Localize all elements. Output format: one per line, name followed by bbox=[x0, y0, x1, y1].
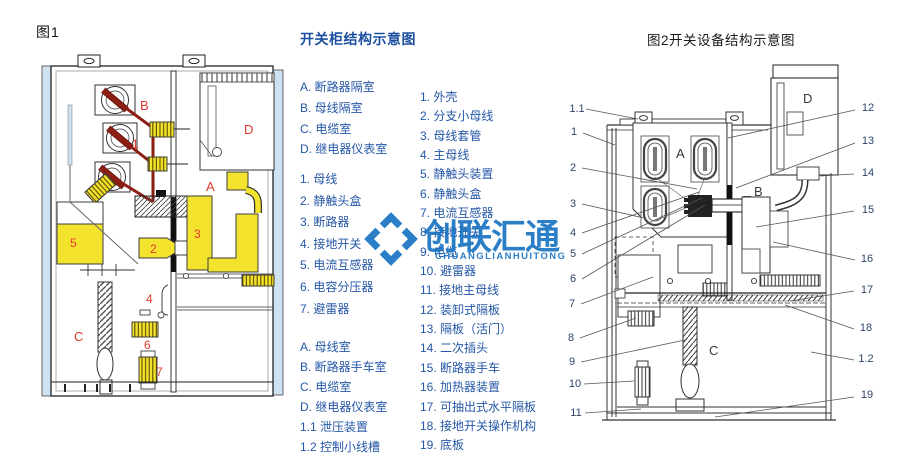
figure2-caption: 图2开关设备结构示意图 bbox=[647, 29, 795, 49]
legend-item: 13. 隔板（活门） bbox=[420, 320, 536, 339]
fig2-compartment-D bbox=[771, 65, 838, 175]
legend-item: 7. 避雷器 bbox=[300, 299, 373, 321]
fig1-label-2: 2 bbox=[150, 242, 157, 256]
legend-item: 18. 接地开关操作机构 bbox=[420, 417, 536, 436]
legend-item: 15. 断路器手车 bbox=[420, 359, 536, 378]
fig1-label-6: 6 bbox=[144, 338, 151, 352]
fig2-callout-12: 12 bbox=[862, 102, 874, 114]
fig2-callout-3: 3 bbox=[570, 198, 576, 210]
fig2-callout-15: 15 bbox=[862, 204, 874, 216]
fig2-callout-9: 9 bbox=[569, 356, 575, 368]
fig2-callout-8: 8 bbox=[568, 332, 574, 344]
fig2-label-D: D bbox=[803, 91, 812, 106]
fig2-callout-6: 6 bbox=[570, 273, 576, 285]
legend-item: 2. 分支小母线 bbox=[420, 107, 536, 126]
fig2-label-B: B bbox=[754, 184, 763, 199]
page: 图1 bbox=[0, 0, 900, 474]
legend-item: A. 母线室 bbox=[300, 337, 387, 357]
fig2-label-A: A bbox=[676, 146, 685, 161]
legend-item: C. 电缆室 bbox=[300, 119, 387, 140]
fig1-label-B: B bbox=[140, 98, 149, 113]
legend-parts-1: 1. 母线 2. 静触头盒 3. 断路器 4. 接地开关 5. 电流互感器 6.… bbox=[300, 169, 373, 320]
legend-item: D. 继电器仪表室 bbox=[300, 397, 387, 417]
legend-compartments-1: A. 断路器隔室 B. 母线隔室 C. 电缆室 D. 继电器仪表室 bbox=[300, 77, 387, 160]
legend-item: 11. 接地主母线 bbox=[420, 281, 536, 300]
fig2-callout-13: 13 bbox=[862, 135, 874, 147]
fig1-label-7: 7 bbox=[156, 365, 163, 379]
legend-item: 10. 避雷器 bbox=[420, 262, 536, 281]
fig2-callout-11: 11 bbox=[570, 407, 581, 419]
fig1-label-4: 4 bbox=[146, 292, 153, 306]
fig2-callout-2: 2 bbox=[570, 162, 576, 174]
legend-item: 4. 主母线 bbox=[420, 146, 536, 165]
legend-item: 7. 电流互感器 bbox=[420, 204, 536, 223]
fig2-callout-1-1: 1.1 bbox=[569, 103, 584, 115]
legend-item: 1. 母线 bbox=[300, 169, 373, 191]
fig1-label-D: D bbox=[244, 122, 253, 137]
legend-item: 4. 接地开关 bbox=[300, 234, 373, 256]
legend-item: D. 继电器仪表室 bbox=[300, 139, 387, 160]
figure2-diagram: A B C D 1.1 1 2 3 4 5 6 7 8 9 10 11 12 1… bbox=[558, 55, 888, 455]
legend-item: 8. 接地开关 bbox=[420, 223, 536, 242]
legend-item: C. 电缆室 bbox=[300, 377, 387, 397]
fig2-callout-1: 1 bbox=[571, 126, 577, 138]
legend-item: 1.1 泄压装置 bbox=[300, 417, 387, 437]
fig1-label-1: 1 bbox=[132, 137, 139, 151]
figure1-caption: 图1 bbox=[36, 22, 60, 42]
legend-item: 2. 静触头盒 bbox=[300, 191, 373, 213]
legend-item: 6. 电容分压器 bbox=[300, 277, 373, 299]
fig1-compartment-D bbox=[200, 73, 274, 170]
fig1-lifting-lugs bbox=[78, 55, 205, 67]
legend-item: 14. 二次插头 bbox=[420, 339, 536, 358]
legend-item: 17. 可抽出式水平隔板 bbox=[420, 398, 536, 417]
legend-item: 19. 底板 bbox=[420, 436, 536, 455]
fig2-callout-19: 19 bbox=[861, 389, 873, 401]
fig2-callout-7: 7 bbox=[569, 298, 575, 310]
fig2-callout-18: 18 bbox=[860, 322, 872, 334]
legend-item: B. 母线隔室 bbox=[300, 98, 387, 119]
legend-item: A. 断路器隔室 bbox=[300, 77, 387, 98]
fig2-callout-5: 5 bbox=[570, 248, 576, 260]
legend-item: 3. 断路器 bbox=[300, 212, 373, 234]
fig2-callout-16: 16 bbox=[861, 253, 873, 265]
legend-parts-2: 1. 外壳 2. 分支小母线 3. 母线套管 4. 主母线 5. 静触头装置 6… bbox=[420, 88, 536, 456]
legend-item: 1. 外壳 bbox=[420, 88, 536, 107]
legend-compartments-2: A. 母线室 B. 断路器手车室 C. 电缆室 D. 继电器仪表室 1.1 泄压… bbox=[300, 337, 387, 458]
legend-item: 5. 电流互感器 bbox=[300, 255, 373, 277]
fig2-callout-10: 10 bbox=[569, 378, 581, 390]
legend-item: 12. 装卸式隔板 bbox=[420, 301, 536, 320]
legend-item: 9. 电缆 bbox=[420, 243, 536, 262]
fig2-callout-14: 14 bbox=[862, 167, 874, 179]
fig1-label-C: C bbox=[74, 329, 83, 344]
legend-item: 6. 静触头盒 bbox=[420, 185, 536, 204]
fig2-label-C: C bbox=[709, 343, 718, 358]
figure1-diagram: B 1 D A 2 3 5 4 C 6 7 bbox=[40, 52, 290, 402]
fig1-label-5: 5 bbox=[70, 236, 77, 250]
fig1-left-panel bbox=[42, 66, 51, 396]
fig2-callout-17: 17 bbox=[861, 284, 873, 296]
fig1-label-3: 3 bbox=[194, 227, 201, 241]
legend-item: 3. 母线套管 bbox=[420, 127, 536, 146]
legend-item: 1.2 控制小线槽 bbox=[300, 437, 387, 457]
fig2-callout-1-2: 1.2 bbox=[858, 353, 873, 365]
legend-title: 开关柜结构示意图 bbox=[300, 29, 416, 49]
fig1-label-A: A bbox=[206, 179, 215, 194]
fig2-truck bbox=[618, 245, 820, 317]
legend-item: 16. 加热器装置 bbox=[420, 378, 536, 397]
fig2-callout-4: 4 bbox=[570, 227, 576, 239]
legend-item: 5. 静触头装置 bbox=[420, 165, 536, 184]
legend-item: B. 断路器手车室 bbox=[300, 357, 387, 377]
